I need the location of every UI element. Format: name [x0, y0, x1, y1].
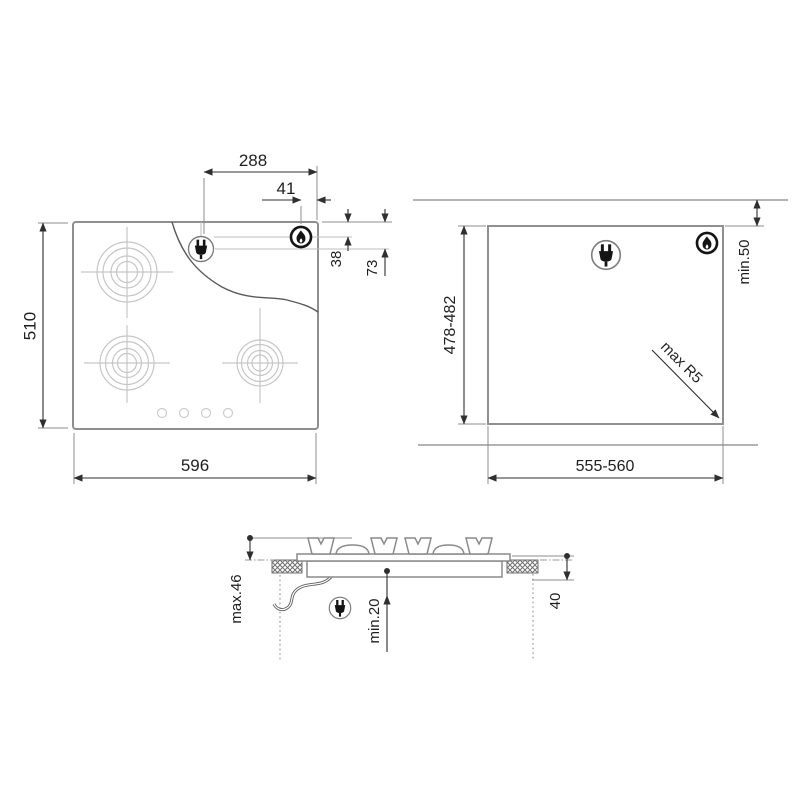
pan-support-foot: [371, 538, 397, 554]
worktop-section-left: [272, 560, 302, 573]
hob-side-view: max.46 min.20 40: [228, 538, 574, 661]
flame-icon: [697, 233, 717, 253]
worktop-cutout-view: 478-482 555-560 min.50 max R5: [413, 200, 788, 484]
dim-label-under-clearance: min.20: [366, 598, 383, 643]
dim-label-cutout-width: 555-560: [576, 458, 635, 475]
power-cable: [274, 577, 331, 610]
pan-support-foot: [405, 538, 431, 554]
dim-label-cutout-depth: 478-482: [442, 296, 459, 355]
hob-body: [307, 561, 502, 577]
dim-cutout-width: 555-560: [488, 426, 723, 484]
dim-under-clearance: min.20: [366, 568, 391, 652]
plug-icon: [592, 241, 621, 270]
plug-icon: [329, 597, 350, 618]
knob: [158, 409, 167, 418]
knob: [202, 409, 211, 418]
knob: [224, 409, 233, 418]
dim-596: 596: [74, 433, 316, 484]
installation-diagram: 288 41 38 73 510: [0, 0, 800, 800]
pan-support-foot: [466, 538, 492, 554]
dim-510: 510: [20, 223, 68, 428]
hob-top-view: 288 41 38 73 510: [20, 151, 392, 484]
pan-supports: [308, 538, 492, 554]
dim-73: 73: [364, 209, 385, 276]
burner-cap: [433, 545, 464, 554]
dim-label-596: 596: [181, 456, 209, 475]
dim-label-recess-depth: 40: [547, 593, 564, 610]
hob-flange: [297, 554, 510, 561]
dim-label-288: 288: [239, 151, 267, 170]
worktop-section-right: [507, 560, 538, 573]
dim-label-38: 38: [328, 251, 345, 268]
flame-icon: [291, 227, 311, 247]
burner-cap: [336, 545, 369, 554]
dim-label-overall-height: max.46: [228, 574, 245, 623]
dim-rear-clearance: min.50: [725, 200, 764, 285]
dim-label-41: 41: [277, 179, 296, 198]
diagram-canvas: 288 41 38 73 510: [0, 0, 800, 800]
dim-label-510: 510: [20, 312, 39, 340]
dim-label-73: 73: [364, 260, 381, 277]
dim-38: 38: [322, 209, 392, 267]
dim-cutout-depth: 478-482: [442, 226, 486, 424]
plug-icon: [188, 236, 213, 261]
pan-support-foot: [308, 538, 334, 554]
knob: [180, 409, 189, 418]
dim-label-rear-clearance: min.50: [736, 239, 753, 284]
dim-41: 41: [262, 179, 331, 224]
